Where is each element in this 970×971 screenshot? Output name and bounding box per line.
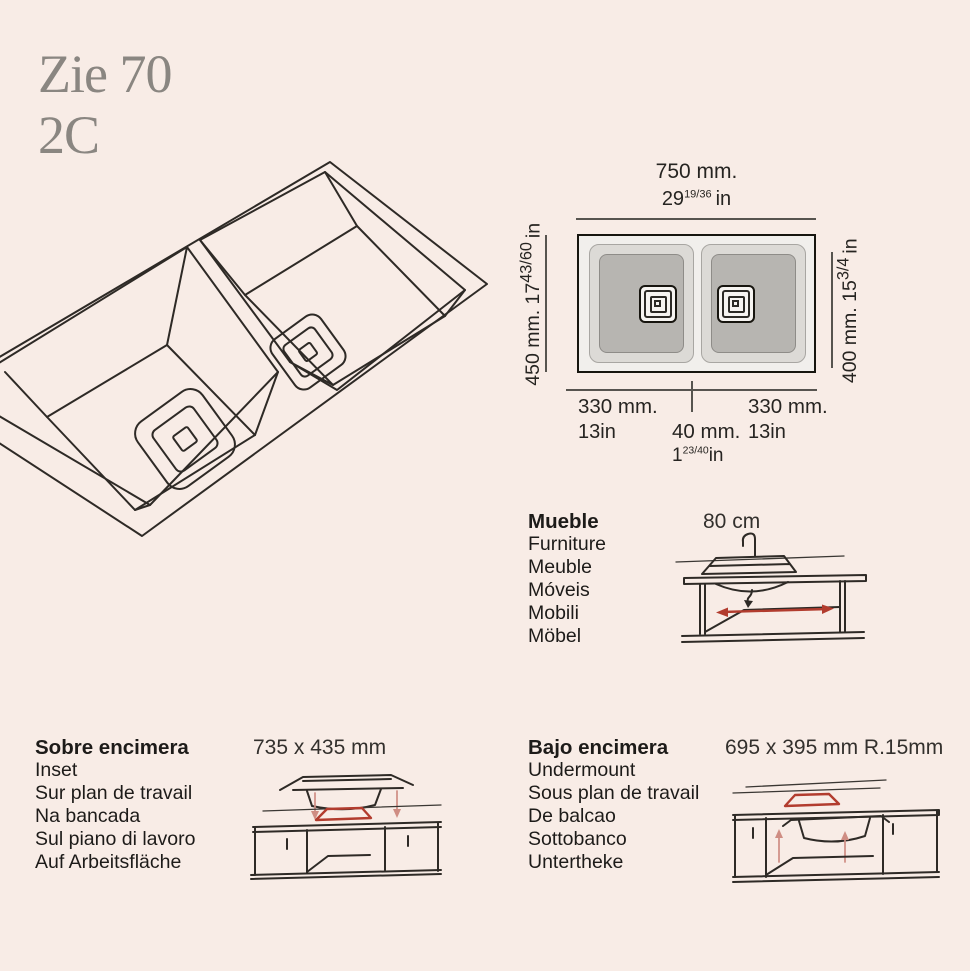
undermount-value: 695 x 395 mm R.15mm: [725, 736, 943, 760]
up-arrow-left-head: [775, 829, 783, 838]
dim-depth-left: 450 mm. 1743/60in: [517, 226, 545, 386]
width-arrow-right-head: [822, 605, 834, 615]
furniture-label-en: Furniture: [528, 533, 606, 556]
inset-arrow-right-head: [393, 809, 401, 818]
inset-label-de: Auf Arbeitsfläche: [35, 851, 195, 874]
furniture-value: 80 cm: [703, 510, 760, 534]
dim-width-mm: 750 mm.: [577, 160, 816, 184]
cabinet-top: [253, 822, 441, 832]
drain-right-icon: [717, 285, 755, 323]
cutout-outline: [785, 794, 839, 806]
undermount-label-en: Undermount: [528, 759, 699, 782]
width-arrow-left-head: [716, 608, 728, 618]
sink-perspective-sketch: [0, 150, 500, 570]
sink-topview-diagram: [577, 234, 816, 373]
undermount-installation-sketch: [733, 760, 953, 888]
dim-width-in: 2919/36in: [577, 188, 816, 211]
dim-bowl-left-mm: 330 mm.: [578, 395, 658, 419]
undermount-label-it: Sottobanco: [528, 828, 699, 851]
inset-label-es: Sobre encimera: [35, 736, 195, 759]
dim-line-left: [545, 235, 547, 372]
faucet-icon: [743, 534, 755, 556]
width-arrow: [722, 609, 828, 612]
inset-value: 735 x 435 mm: [253, 736, 386, 760]
door-handles: [753, 824, 893, 838]
inset-label-fr: Sur plan de travail: [35, 782, 195, 805]
product-title-line1: Zie 70: [38, 44, 171, 105]
door-dividers: [307, 827, 385, 873]
furniture-labels: Mueble Furniture Meuble Móveis Mobili Mö…: [528, 510, 606, 648]
spec-sheet: Zie 70 2C 750 mm. 2919/36in 450 mm. 1743…: [0, 0, 970, 971]
furniture-label-es: Mueble: [528, 510, 606, 533]
counter-back-lines: [733, 780, 886, 793]
undermount-label-de: Untertheke: [528, 851, 699, 874]
cabinet-bottom: [733, 872, 939, 882]
countertop-lines: [684, 575, 866, 584]
drain-pipe-arrowhead: [744, 600, 753, 608]
inset-installation-sketch: [245, 763, 445, 883]
cabinet-bottom: [682, 632, 864, 642]
inset-labels: Sobre encimera Inset Sur plan de travail…: [35, 736, 195, 874]
inset-sink-flange: [280, 775, 413, 790]
dim-bowl-right-mm: 330 mm.: [748, 395, 828, 419]
furniture-label-pt: Móveis: [528, 579, 606, 602]
dim-bowl-left-in: 13in: [578, 421, 616, 444]
drain-left-icon: [639, 285, 677, 323]
dim-depth-right: 400 mm. 153/4in: [834, 236, 862, 386]
inset-label-pt: Na bancada: [35, 805, 195, 828]
product-title: Zie 70 2C: [38, 44, 171, 166]
dim-bowl-right-in: 13in: [748, 421, 786, 444]
sink-outer-rim: [0, 162, 487, 536]
door-handles: [287, 836, 408, 849]
cabinet-sides: [735, 811, 937, 877]
furniture-label-it: Mobili: [528, 602, 606, 625]
inset-label-en: Inset: [35, 759, 195, 782]
undermount-label-es: Bajo encimera: [528, 736, 699, 759]
cabinet-bottom: [251, 870, 441, 879]
dim-line-right: [831, 252, 833, 368]
undermount-labels: Bajo encimera Undermount Sous plan de tr…: [528, 736, 699, 874]
undermount-sink-basin: [799, 818, 870, 842]
undermount-label-fr: Sous plan de travail: [528, 782, 699, 805]
cabinet-interior: [766, 856, 873, 875]
furniture-label-de: Möbel: [528, 625, 606, 648]
inset-sink-basin: [307, 789, 381, 809]
cabinet-sketch: [672, 532, 872, 657]
dim-divider-mm: 40 mm.: [672, 420, 740, 444]
inset-label-it: Sul piano di lavoro: [35, 828, 195, 851]
dim-divider-in: 123/40in: [672, 445, 724, 467]
cabinet-interior: [307, 855, 370, 872]
dim-line-divider-tick: [691, 381, 693, 412]
undermount-label-pt: De balcao: [528, 805, 699, 828]
furniture-label-fr: Meuble: [528, 556, 606, 579]
up-arrow-right-head: [841, 831, 849, 840]
dim-line-top: [576, 218, 816, 220]
